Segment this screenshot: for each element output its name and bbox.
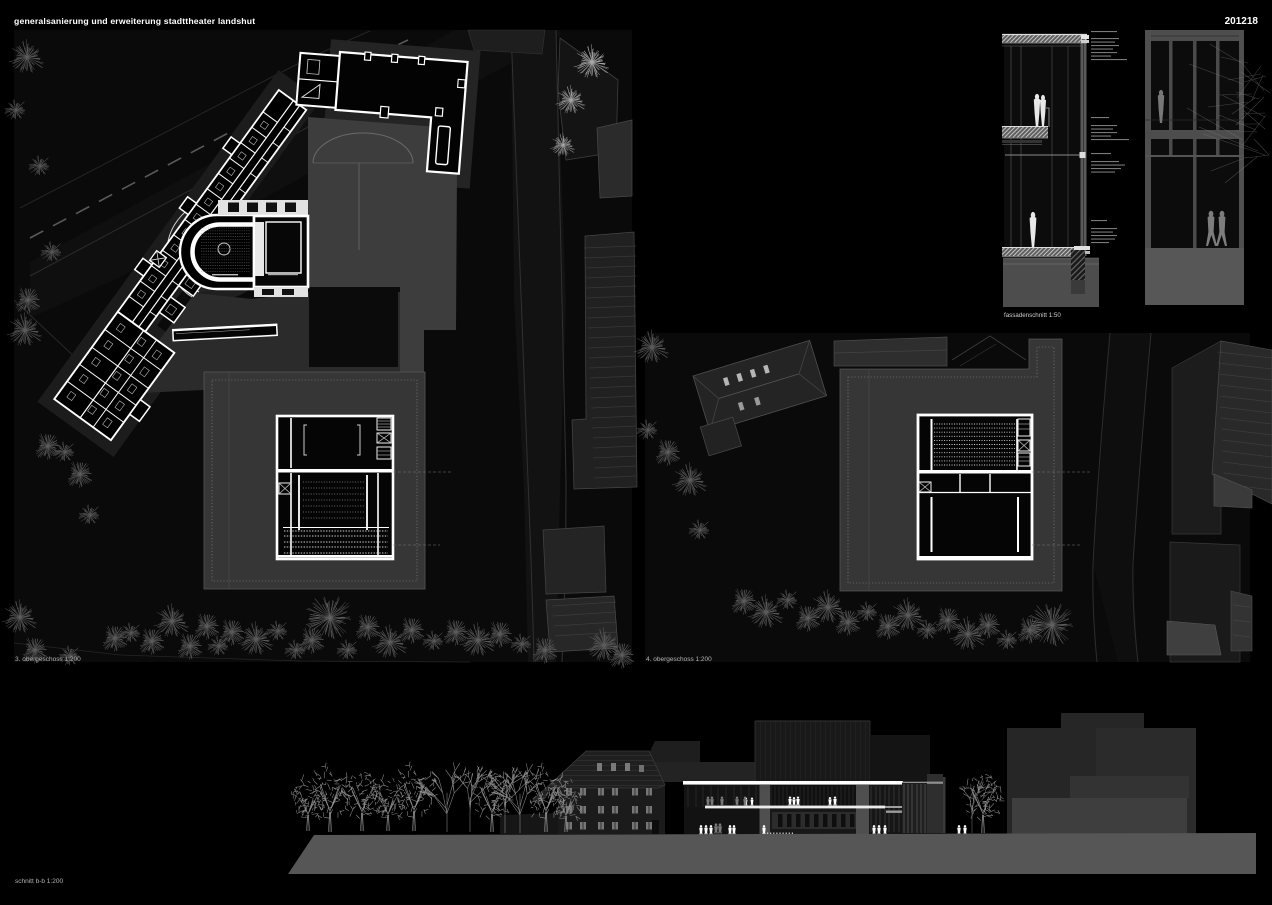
svg-text:3. obergeschoss 1:200: 3. obergeschoss 1:200 <box>15 656 81 663</box>
svg-text:4. obergeschoss 1:200: 4. obergeschoss 1:200 <box>646 656 712 663</box>
svg-text:schnitt b-b 1:200: schnitt b-b 1:200 <box>15 878 63 885</box>
svg-text:201218: 201218 <box>1225 16 1259 27</box>
svg-text:generalsanierung und erweiteru: generalsanierung und erweiterung stadtth… <box>14 16 255 26</box>
svg-text:fassadenschnitt 1:50: fassadenschnitt 1:50 <box>1004 312 1061 319</box>
